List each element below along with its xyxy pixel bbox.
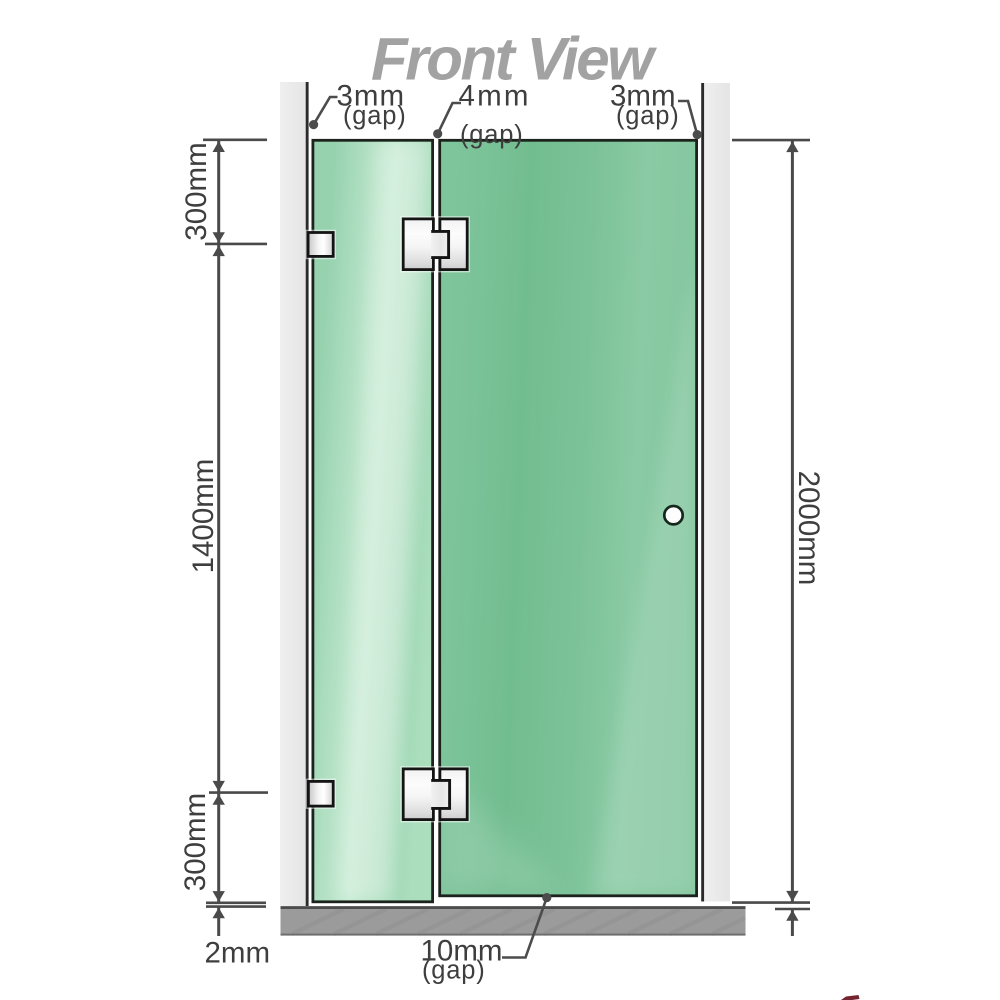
svg-text:(gap): (gap) <box>343 102 407 130</box>
svg-text:4mm: 4mm <box>459 80 531 113</box>
svg-text:300mm: 300mm <box>180 142 213 240</box>
svg-text:2mm: 2mm <box>205 937 271 970</box>
svg-text:(gap): (gap) <box>460 121 524 149</box>
svg-text:(gap): (gap) <box>422 957 486 985</box>
svg-text:1400mm: 1400mm <box>187 459 220 574</box>
svg-text:300mm: 300mm <box>179 793 212 891</box>
svg-text:2000mm: 2000mm <box>792 471 825 586</box>
svg-text:(gap): (gap) <box>616 102 680 130</box>
